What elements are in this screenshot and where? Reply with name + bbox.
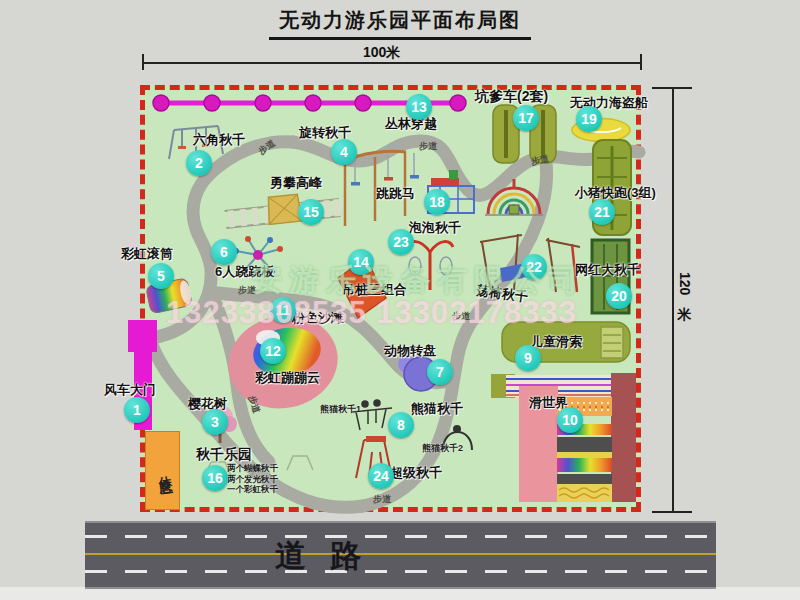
attraction-label-15: 勇攀高峰 <box>270 174 322 192</box>
width-dimension-label: 100米 <box>363 44 400 62</box>
road: 道 路 <box>85 521 716 589</box>
road-lane-line-bottom <box>85 570 716 573</box>
attraction-badge-1: 1 <box>124 397 150 423</box>
attraction-badge-2: 2 <box>186 150 212 176</box>
attraction-label-8: 熊猫秋千 <box>411 400 463 418</box>
width-dimension-line <box>143 62 641 64</box>
attraction-label-20: 网红大秋千 <box>575 261 640 279</box>
attraction-label-21: 小猪快跑(3组) <box>575 184 656 202</box>
page-title: 无动力游乐园平面布局图 <box>0 7 800 40</box>
attraction-badge-23: 23 <box>388 229 414 255</box>
attraction-badge-9: 9 <box>515 345 541 371</box>
attraction-label-11: 粉色沙滩 <box>292 309 344 327</box>
attraction-label-6: 6人跷跷板 <box>215 263 274 281</box>
sub-label-2: 熊猫秋千2 <box>422 442 463 455</box>
height-dimension-line <box>672 88 674 512</box>
attraction-badge-11: 11 <box>270 297 296 323</box>
attraction-badge-6: 6 <box>211 239 237 265</box>
width-dimension-tick-right <box>640 54 642 70</box>
width-dimension-tick-left <box>142 54 144 70</box>
attraction-badge-3: 3 <box>202 409 228 435</box>
attraction-badge-14: 14 <box>348 249 374 275</box>
attraction-badge-15: 15 <box>298 199 324 225</box>
attraction-label-23: 泡泡秋千 <box>409 219 461 237</box>
footpath-label-4: 步道 <box>238 284 256 297</box>
attraction-label-5: 彩虹滚筒 <box>121 245 173 263</box>
attraction-badge-18: 18 <box>424 189 450 215</box>
height-dimension-tick-bottom <box>652 511 692 513</box>
footpath-label-7: 步道 <box>373 493 391 506</box>
attraction-label-2: 六角秋千 <box>193 131 245 149</box>
park-layout-poster: 无动力游乐园平面布局图 100米 120米 <box>0 0 800 600</box>
swing-park-notes: 两个蝴蝶秋千 两个发光秋千 一个彩虹秋千 <box>227 463 278 495</box>
sub-label-1: 熊猫秋千1 <box>320 403 361 416</box>
attraction-badge-22: 22 <box>521 254 547 280</box>
attraction-label-1: 风车大门 <box>104 381 156 399</box>
attraction-label-14: 吊桩三组合 <box>342 281 407 299</box>
height-dimension-tick-top <box>652 87 692 89</box>
road-center-line <box>85 553 716 555</box>
attraction-badge-17: 17 <box>513 105 539 131</box>
attraction-label-18: 跳跳马 <box>376 185 415 203</box>
road-lane-line-top <box>85 535 716 538</box>
attraction-badge-16: 16 <box>202 465 228 491</box>
attraction-badge-12: 12 <box>260 338 286 364</box>
attraction-badge-19: 19 <box>576 106 602 132</box>
attraction-label-24: 超级秋千 <box>390 464 442 482</box>
attraction-badge-10: 10 <box>557 407 583 433</box>
footpath-label-5: 步道 <box>452 310 470 323</box>
attraction-label-16: 秋千乐园 <box>196 446 252 464</box>
attraction-badge-13: 13 <box>406 94 432 120</box>
attraction-label-17: 坑爹车(2套) <box>475 88 548 106</box>
attraction-label-7: 动物转盘 <box>384 342 436 360</box>
attraction-label-9: 儿童滑索 <box>530 333 582 351</box>
attraction-badge-20: 20 <box>606 283 632 309</box>
road-label: 道 路 <box>275 535 370 577</box>
attraction-badge-4: 4 <box>331 139 357 165</box>
height-dimension-label: 120米 <box>676 272 694 295</box>
rest-area-label: 休息区 <box>153 465 172 476</box>
attraction-badge-21: 21 <box>589 199 615 225</box>
attraction-badge-24: 24 <box>368 463 394 489</box>
attraction-badge-8: 8 <box>388 412 414 438</box>
footpath-label-2: 步道 <box>419 140 437 153</box>
attraction-label-12: 彩虹蹦蹦云 <box>255 369 320 387</box>
attraction-badge-5: 5 <box>148 263 174 289</box>
rest-area: 休息区 <box>145 431 180 510</box>
attraction-badge-7: 7 <box>427 359 453 385</box>
